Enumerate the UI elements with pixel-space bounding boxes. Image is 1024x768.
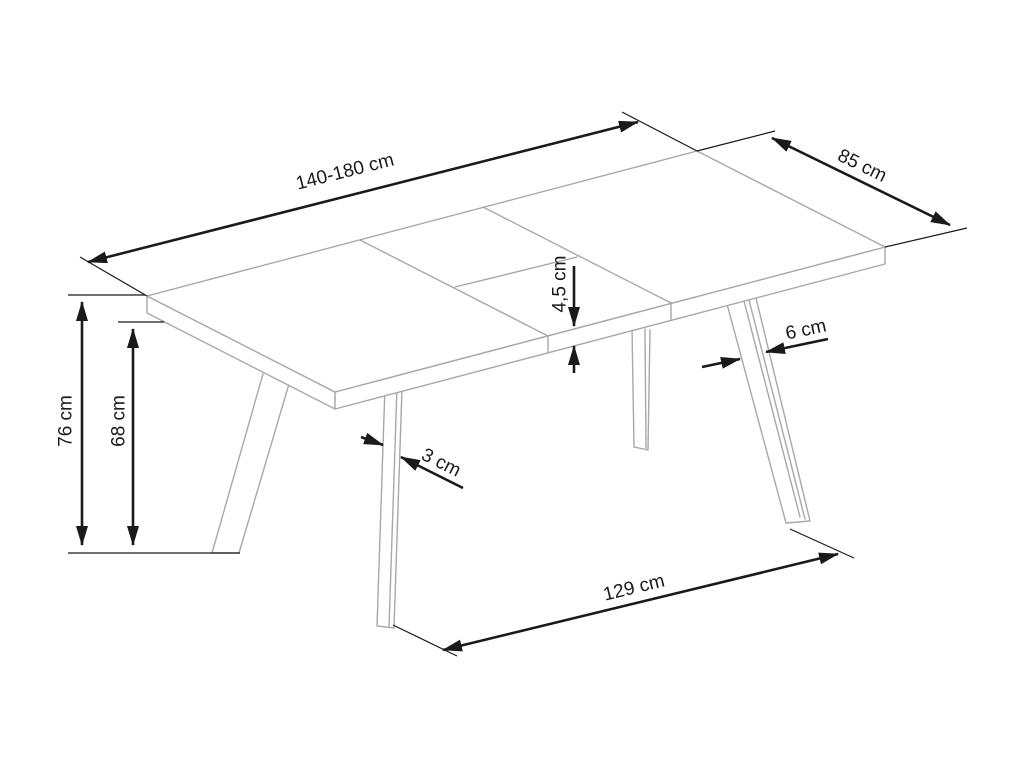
dimension-clearance: 68 cm (109, 322, 165, 545)
clearance-dimension-label: 68 cm (109, 395, 130, 447)
dimension-feet-span: 129 cm (393, 529, 854, 656)
table-leg-back-left (212, 374, 289, 553)
dimension-leg-width: 6 cm (702, 315, 828, 367)
dimension-leg-thickness: 3 cm (361, 437, 464, 488)
table-leg-front-center (377, 386, 402, 628)
feet-span-dimension-label: 129 cm (601, 570, 667, 605)
dimension-diagram-page: 140-180 cm 85 cm 76 cm 68 cm 4,5 cm (0, 0, 1024, 768)
top-thickness-dimension-label: 4,5 cm (550, 255, 571, 312)
table-leg-back-right (632, 328, 650, 450)
height-dimension-label: 76 cm (56, 395, 77, 447)
table-dimension-drawing: 140-180 cm 85 cm 76 cm 68 cm 4,5 cm (0, 0, 1024, 768)
